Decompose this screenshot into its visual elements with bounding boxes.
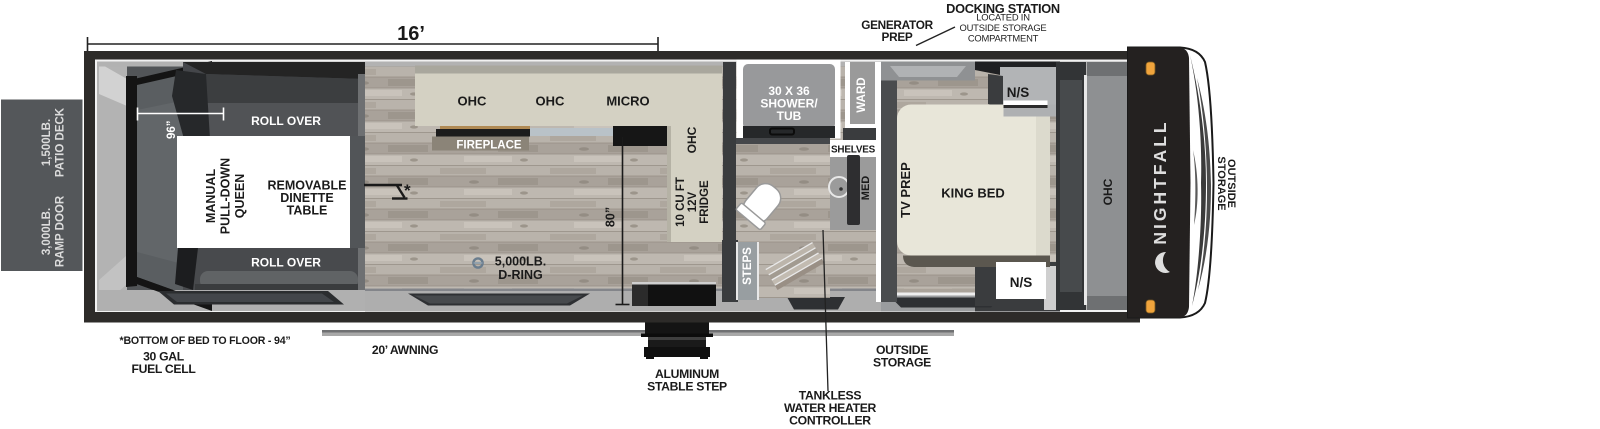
svg-text:N/S: N/S (1010, 275, 1033, 290)
svg-text:STORAGE: STORAGE (873, 356, 931, 370)
svg-text:OHC: OHC (1101, 178, 1115, 205)
svg-text:STEPS: STEPS (742, 247, 754, 285)
svg-text:QUEEN: QUEEN (233, 174, 247, 218)
svg-text:TV PREP: TV PREP (898, 162, 913, 218)
svg-text:MED: MED (860, 176, 872, 201)
svg-text:D-RING: D-RING (498, 268, 542, 282)
svg-text:NIGHTFALL: NIGHTFALL (1150, 119, 1170, 244)
svg-text:12V: 12V (687, 191, 699, 212)
svg-text:MICRO: MICRO (606, 94, 649, 109)
svg-text:*BOTTOM OF BED TO FLOOR - 94”: *BOTTOM OF BED TO FLOOR - 94” (120, 335, 291, 347)
svg-text:COMPARTMENT: COMPARTMENT (968, 33, 1039, 44)
svg-text:ROLL OVER: ROLL OVER (251, 256, 321, 270)
svg-text:FUEL CELL: FUEL CELL (131, 362, 196, 376)
svg-text:SHELVES: SHELVES (831, 145, 876, 156)
svg-text:PREP: PREP (882, 30, 913, 44)
svg-text:KING BED: KING BED (941, 186, 1005, 201)
svg-text:OHC: OHC (536, 94, 566, 109)
svg-text:80”: 80” (604, 207, 618, 227)
svg-text:OUTSIDE STORAGE: OUTSIDE STORAGE (960, 22, 1047, 33)
svg-text:FIREPLACE: FIREPLACE (456, 140, 522, 152)
svg-text:PULL-DOWN: PULL-DOWN (219, 158, 233, 234)
svg-text:OHC: OHC (685, 126, 699, 153)
svg-text:N/S: N/S (1007, 85, 1030, 100)
svg-text:STABLE STEP: STABLE STEP (647, 380, 727, 394)
svg-text:OUTSIDESTORAGE: OUTSIDESTORAGE (1215, 156, 1237, 210)
svg-text:TUB: TUB (777, 109, 802, 123)
svg-text:*: * (404, 181, 411, 200)
svg-text:10 CU FT: 10 CU FT (675, 177, 687, 227)
svg-text:ROLL OVER: ROLL OVER (251, 114, 321, 128)
svg-text:TABLE: TABLE (287, 204, 328, 218)
svg-text:WARD: WARD (856, 77, 868, 112)
svg-text:OHC: OHC (458, 94, 488, 109)
svg-text:MANUAL: MANUAL (204, 169, 218, 224)
svg-text:5,000LB.: 5,000LB. (495, 255, 546, 269)
svg-text:16’: 16’ (397, 23, 425, 45)
svg-text:96”: 96” (166, 121, 178, 140)
svg-text:LOCATED IN: LOCATED IN (976, 12, 1030, 23)
svg-text:20’ AWNING: 20’ AWNING (372, 343, 438, 357)
svg-text:CONTROLLER: CONTROLLER (789, 414, 871, 428)
svg-text:FRIDGE: FRIDGE (699, 180, 711, 224)
